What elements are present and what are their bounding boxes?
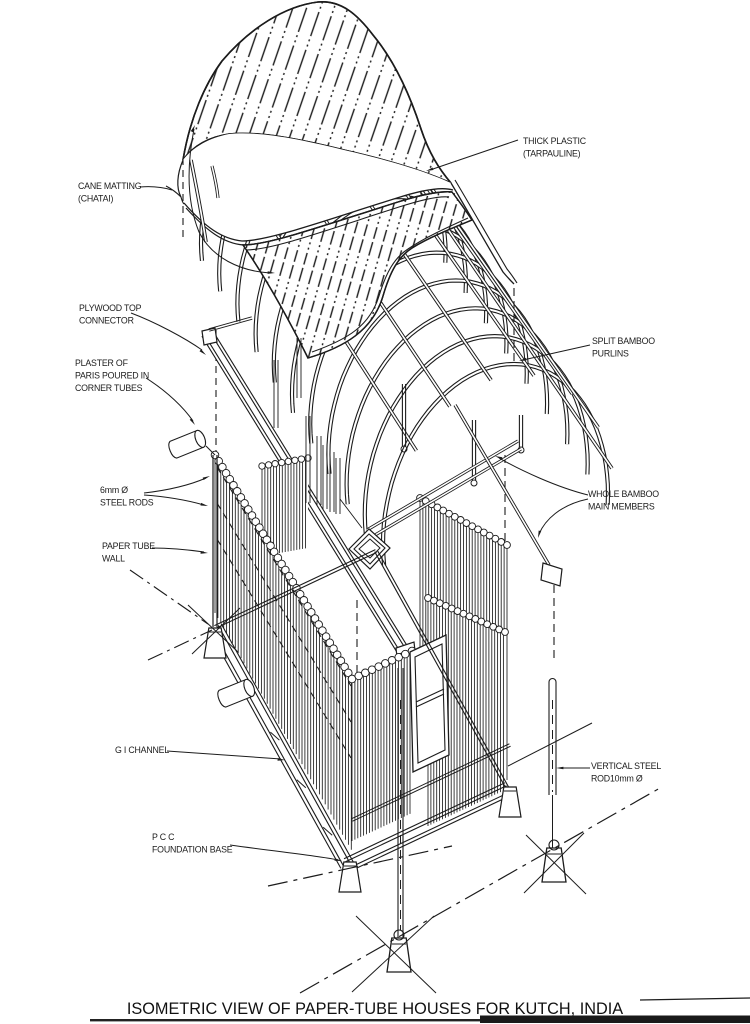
svg-text:ISOMETRIC VIEW OF PAPER-TUBE H: ISOMETRIC VIEW OF PAPER-TUBE HOUSES FOR … (127, 1000, 623, 1018)
svg-text:G I CHANNEL: G I CHANNEL (115, 745, 169, 755)
